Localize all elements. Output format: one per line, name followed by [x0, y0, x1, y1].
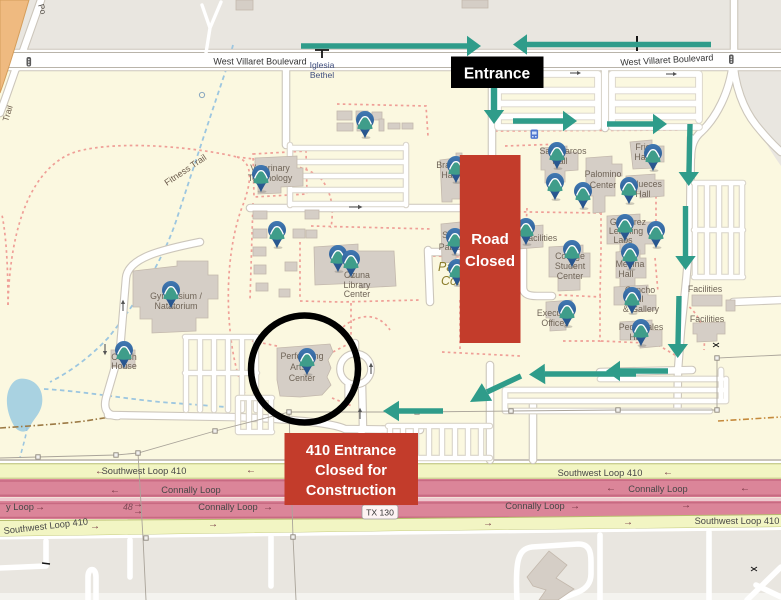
svg-text:→: →	[681, 500, 691, 511]
svg-text:Natatorium: Natatorium	[154, 301, 197, 311]
svg-text:Connally Loop: Connally Loop	[198, 502, 257, 512]
svg-text:→: →	[483, 518, 493, 529]
svg-text:←: ←	[246, 465, 256, 476]
svg-text:←: ←	[95, 466, 105, 477]
svg-text:→: →	[570, 501, 580, 512]
svg-text:Construction: Construction	[306, 483, 396, 499]
svg-text:Entrance: Entrance	[464, 66, 531, 83]
svg-text:Southwest Loop 410: Southwest Loop 410	[695, 516, 780, 526]
svg-text:→: →	[90, 521, 100, 532]
svg-text:West Villaret Boulevard: West Villaret Boulevard	[213, 57, 306, 67]
svg-text:y Loop: y Loop	[6, 502, 34, 512]
svg-text:←: ←	[606, 483, 616, 494]
svg-text:→: →	[35, 502, 45, 513]
svg-text:Facilities: Facilities	[690, 314, 725, 324]
svg-text:Center: Center	[344, 289, 370, 299]
svg-text:Connally Loop: Connally Loop	[628, 484, 687, 494]
svg-text:Iglesia: Iglesia	[310, 60, 335, 70]
svg-text:←: ←	[110, 485, 120, 496]
svg-text:Bethel: Bethel	[310, 70, 334, 80]
svg-text:Closed: Closed	[465, 253, 515, 270]
svg-text:Ozuna: Ozuna	[344, 270, 370, 280]
svg-text:→: →	[208, 519, 218, 530]
svg-text:Center: Center	[590, 180, 616, 190]
svg-text:410 Entrance: 410 Entrance	[306, 443, 396, 459]
svg-text:→: →	[263, 502, 273, 513]
svg-text:Connally Loop: Connally Loop	[505, 501, 564, 511]
svg-text:Palomino: Palomino	[585, 169, 622, 179]
svg-text:Connally Loop: Connally Loop	[161, 485, 220, 495]
svg-text:←: ←	[663, 467, 673, 478]
svg-text:TX 130: TX 130	[366, 508, 394, 518]
svg-text:←: ←	[740, 483, 750, 494]
svg-text:Closed for: Closed for	[315, 463, 387, 479]
svg-text:Center: Center	[557, 271, 583, 281]
svg-text:Southwest Loop 410: Southwest Loop 410	[558, 468, 643, 478]
svg-text:Road: Road	[471, 231, 509, 248]
svg-text:Facilities: Facilities	[688, 284, 723, 294]
svg-text:→: →	[623, 517, 633, 528]
svg-text:Hall: Hall	[635, 189, 650, 199]
svg-text:→: →	[133, 506, 143, 517]
svg-text:Southwest Loop 410: Southwest Loop 410	[102, 466, 187, 476]
svg-text:48: 48	[123, 502, 133, 512]
